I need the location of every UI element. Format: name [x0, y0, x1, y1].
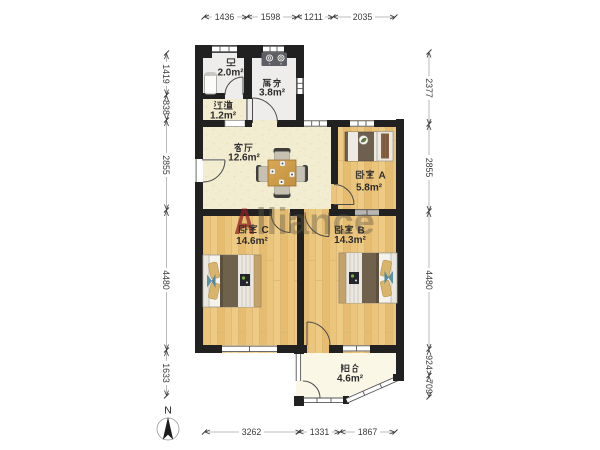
svg-text:A: A: [379, 171, 386, 182]
svg-text:924: 924: [424, 355, 434, 370]
svg-text:C: C: [262, 225, 269, 236]
svg-text:838: 838: [161, 100, 171, 115]
svg-text:14.6m²: 14.6m²: [236, 236, 268, 247]
svg-text:4480: 4480: [161, 270, 171, 290]
svg-text:1867: 1867: [358, 427, 378, 437]
svg-text:2377: 2377: [424, 78, 434, 98]
svg-text:2855: 2855: [161, 155, 171, 175]
svg-text:1419: 1419: [161, 64, 171, 84]
svg-text:1.2m²: 1.2m²: [210, 111, 237, 122]
svg-text:1633: 1633: [161, 363, 171, 383]
svg-text:3262: 3262: [242, 427, 262, 437]
svg-text:2.0m²: 2.0m²: [217, 68, 244, 79]
svg-text:1436: 1436: [215, 12, 235, 22]
svg-text:2035: 2035: [353, 12, 373, 22]
svg-text:1331: 1331: [310, 427, 330, 437]
svg-text:709: 709: [424, 379, 434, 394]
svg-text:1598: 1598: [261, 12, 281, 22]
svg-text:5.8m²: 5.8m²: [356, 183, 383, 194]
svg-text:12.6m²: 12.6m²: [228, 153, 260, 164]
svg-text:4480: 4480: [424, 270, 434, 290]
svg-text:3.8m²: 3.8m²: [259, 88, 286, 99]
svg-text:N: N: [164, 405, 172, 417]
svg-text:4.6m²: 4.6m²: [337, 374, 364, 385]
svg-text:2855: 2855: [424, 158, 434, 178]
svg-text:1211: 1211: [304, 12, 323, 22]
svg-text:14.3m²: 14.3m²: [334, 235, 366, 246]
